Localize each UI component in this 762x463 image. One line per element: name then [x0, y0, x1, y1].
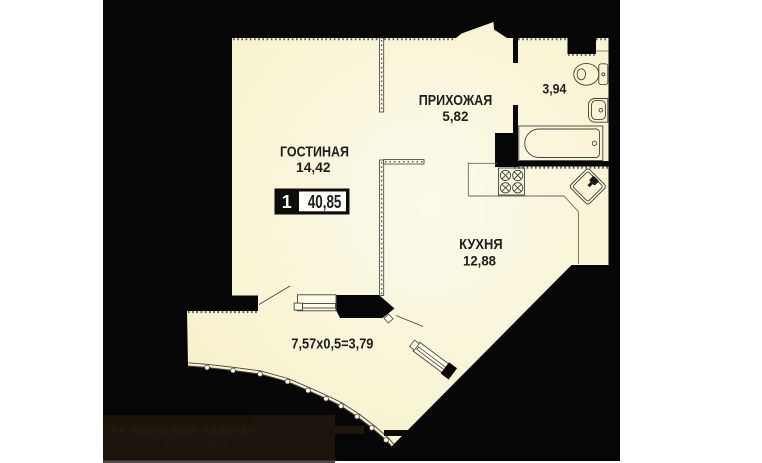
- svg-text:14,42: 14,42: [296, 160, 331, 176]
- svg-text:3,94: 3,94: [542, 81, 566, 97]
- svg-text:литер 2.1 этаж 4-16: литер 2.1 этаж 4-16: [132, 442, 228, 451]
- svg-text:ГОСТИНАЯ: ГОСТИНАЯ: [280, 144, 349, 161]
- svg-text:ПРИХОЖАЯ: ПРИХОЖАЯ: [419, 92, 493, 109]
- svg-text:жк парковый квартал: жк парковый квартал: [109, 425, 258, 437]
- svg-text:7,57x0,5=3,79: 7,57x0,5=3,79: [291, 335, 373, 352]
- svg-text:40,85: 40,85: [308, 192, 342, 212]
- svg-text:КУХНЯ: КУХНЯ: [459, 236, 503, 253]
- svg-text:12,88: 12,88: [463, 253, 496, 269]
- svg-text:1: 1: [282, 192, 292, 212]
- svg-text:5,82: 5,82: [442, 109, 468, 125]
